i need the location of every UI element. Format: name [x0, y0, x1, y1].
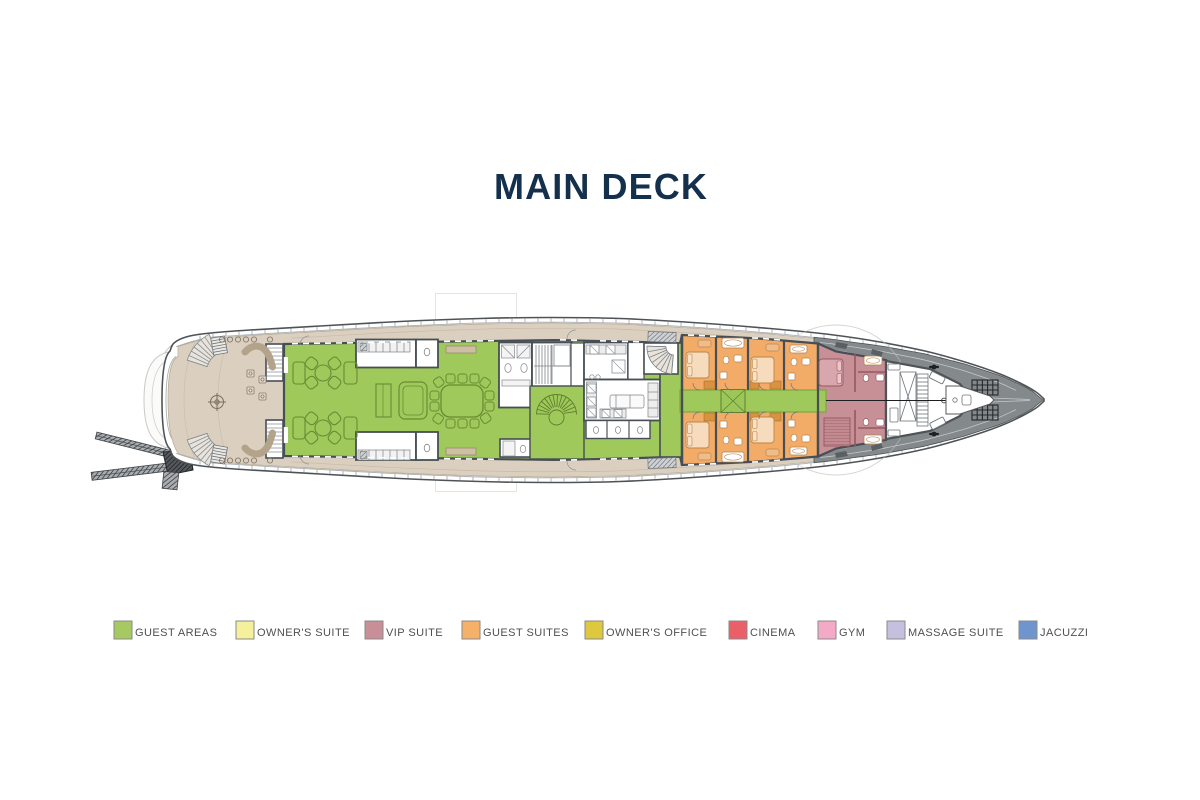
svg-text:GYM: GYM [839, 627, 865, 639]
svg-text:OWNER'S OFFICE: OWNER'S OFFICE [606, 627, 707, 639]
svg-text:GUEST SUITES: GUEST SUITES [483, 627, 569, 639]
svg-text:MAIN DECK: MAIN DECK [494, 166, 708, 207]
svg-text:JACUZZI: JACUZZI [1040, 627, 1088, 639]
svg-text:CINEMA: CINEMA [750, 627, 796, 639]
svg-text:MASSAGE SUITE: MASSAGE SUITE [908, 627, 1004, 639]
svg-text:GUEST AREAS: GUEST AREAS [135, 627, 217, 639]
svg-text:VIP SUITE: VIP SUITE [386, 627, 443, 639]
svg-text:OWNER'S SUITE: OWNER'S SUITE [257, 627, 350, 639]
